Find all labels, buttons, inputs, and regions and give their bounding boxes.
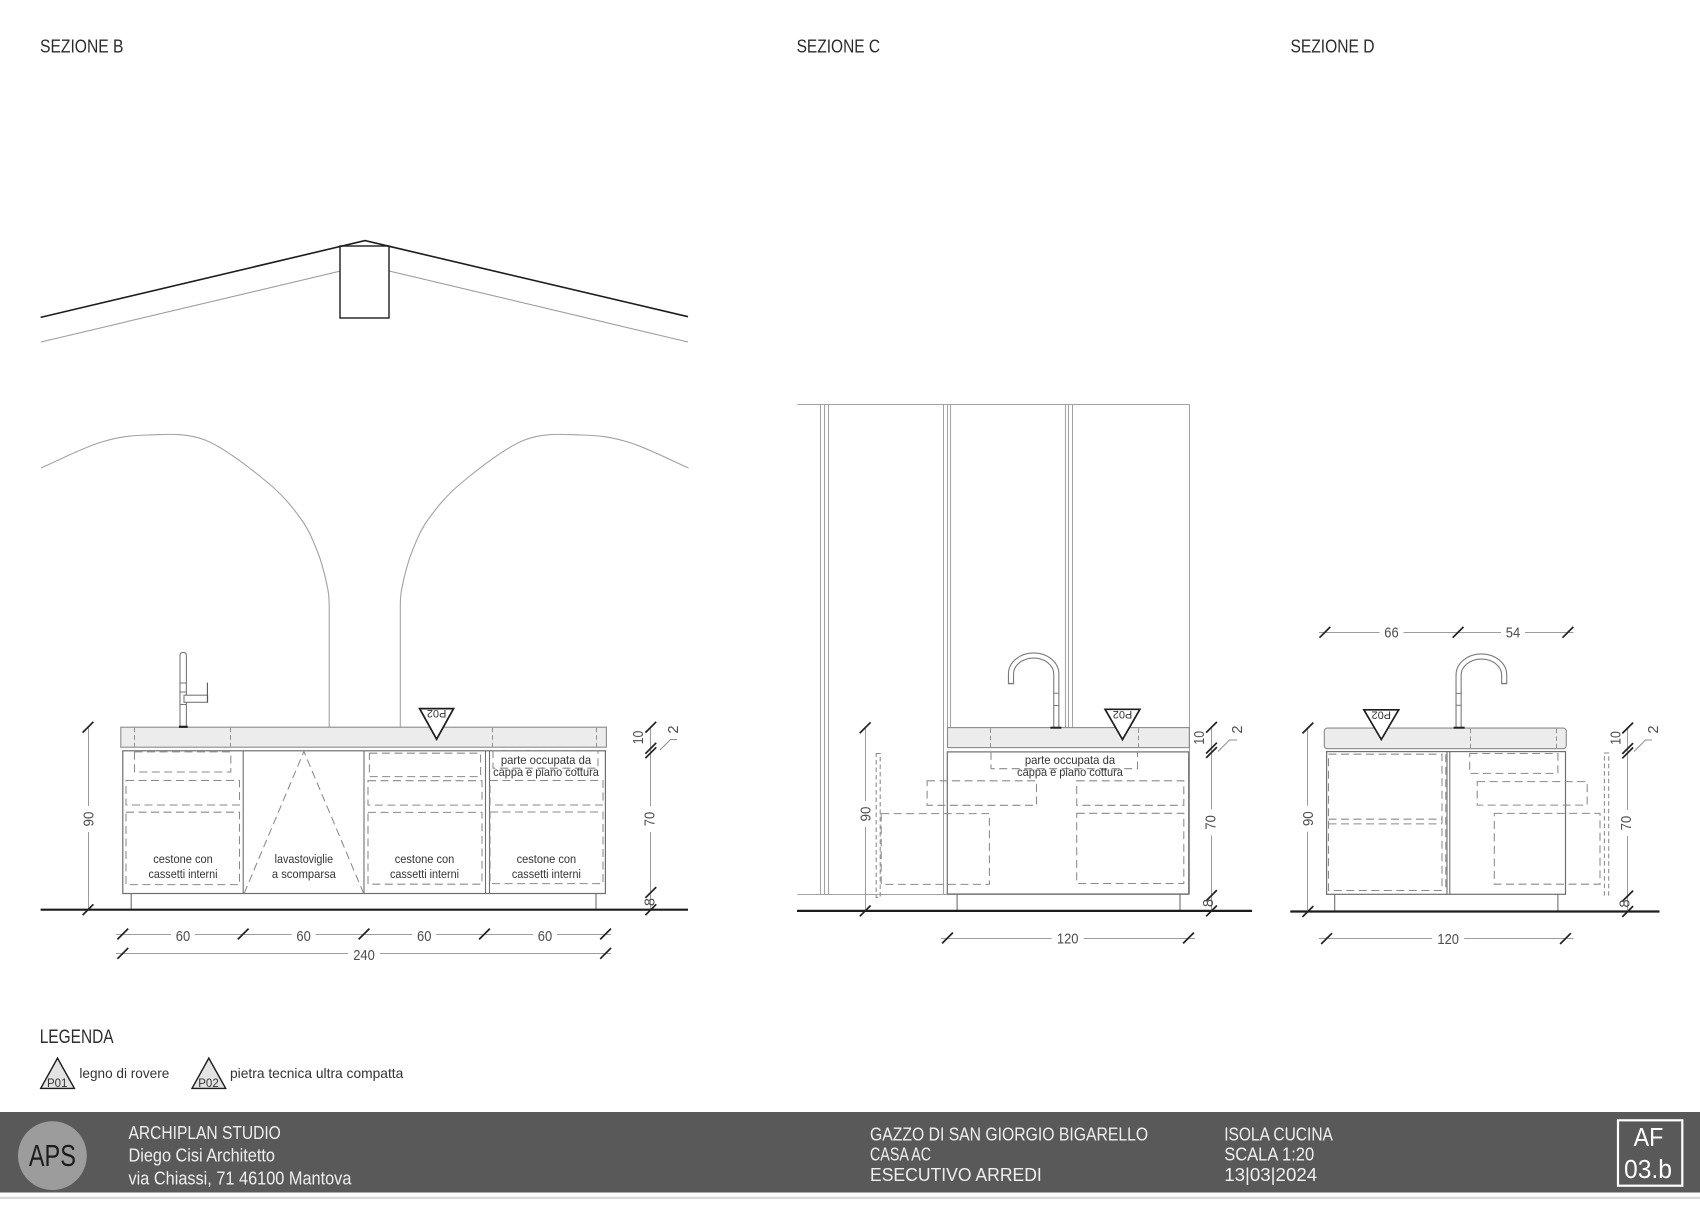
svg-text:GAZZO DI SAN GIORGIO BIGARELLO: GAZZO DI SAN GIORGIO BIGARELLO (870, 1124, 1148, 1145)
svg-text:cassetti interni: cassetti interni (390, 867, 459, 881)
svg-text:70: 70 (642, 812, 658, 826)
svg-text:P02: P02 (1113, 708, 1133, 720)
svg-text:via Chiassi, 71 46100 Mantova: via Chiassi, 71 46100 Mantova (129, 1167, 352, 1188)
svg-text:cestone con: cestone con (153, 852, 213, 866)
svg-text:SCALA 1:20: SCALA 1:20 (1224, 1144, 1314, 1165)
svg-text:SEZIONE B: SEZIONE B (40, 37, 124, 57)
svg-text:240: 240 (353, 948, 375, 964)
svg-text:P02: P02 (1372, 709, 1392, 721)
svg-text:54: 54 (1506, 626, 1520, 642)
svg-text:P01: P01 (47, 1078, 67, 1090)
svg-text:legno di rovere: legno di rovere (79, 1065, 169, 1081)
svg-text:120: 120 (1437, 932, 1459, 948)
svg-text:Diego Cisi Architetto: Diego Cisi Architetto (129, 1145, 275, 1166)
svg-text:ARCHIPLAN STUDIO: ARCHIPLAN STUDIO (129, 1122, 281, 1143)
svg-text:LEGENDA: LEGENDA (40, 1027, 114, 1048)
svg-text:ESECUTIVO ARREDI: ESECUTIVO ARREDI (870, 1164, 1042, 1185)
svg-text:cappa e piano cottura: cappa e piano cottura (1017, 765, 1123, 779)
svg-text:90: 90 (859, 807, 875, 822)
svg-text:a scomparsa: a scomparsa (272, 867, 336, 881)
svg-text:70: 70 (1203, 815, 1219, 829)
svg-text:2: 2 (666, 725, 682, 733)
svg-text:cassetti interni: cassetti interni (149, 867, 218, 881)
svg-text:2: 2 (1646, 725, 1662, 733)
svg-text:2: 2 (1230, 725, 1246, 733)
svg-text:8: 8 (642, 898, 658, 906)
svg-text:10: 10 (631, 731, 647, 745)
svg-text:AF: AF (1634, 1124, 1664, 1152)
svg-text:10: 10 (1192, 731, 1208, 745)
svg-text:APS: APS (29, 1139, 76, 1173)
svg-text:8: 8 (1201, 899, 1217, 907)
svg-text:66: 66 (1384, 626, 1398, 642)
svg-text:60: 60 (176, 929, 190, 945)
svg-text:P02: P02 (198, 1078, 218, 1090)
svg-text:70: 70 (1619, 816, 1635, 830)
svg-text:cassetti interni: cassetti interni (512, 867, 581, 881)
svg-text:120: 120 (1057, 931, 1079, 947)
svg-text:SEZIONE C: SEZIONE C (797, 37, 881, 57)
svg-text:cestone con: cestone con (395, 852, 455, 866)
svg-text:P02: P02 (427, 707, 447, 719)
svg-text:SEZIONE D: SEZIONE D (1291, 37, 1375, 57)
svg-text:03.b: 03.b (1624, 1156, 1672, 1184)
svg-text:10: 10 (1608, 731, 1624, 745)
svg-text:CASA AC: CASA AC (870, 1144, 931, 1165)
svg-text:8: 8 (1617, 899, 1633, 907)
svg-text:cestone con: cestone con (517, 852, 577, 866)
svg-text:pietra tecnica ultra compatta: pietra tecnica ultra compatta (230, 1065, 404, 1081)
svg-text:60: 60 (538, 929, 552, 945)
svg-text:60: 60 (296, 929, 310, 945)
svg-text:60: 60 (417, 929, 431, 945)
svg-text:ISOLA CUCINA: ISOLA CUCINA (1224, 1124, 1333, 1145)
svg-text:lavastoviglie: lavastoviglie (275, 852, 334, 866)
svg-text:13|03|2024: 13|03|2024 (1224, 1164, 1317, 1185)
svg-text:90: 90 (81, 812, 97, 827)
svg-text:cappa e piano cottura: cappa e piano cottura (493, 765, 599, 779)
svg-text:90: 90 (1301, 811, 1317, 826)
